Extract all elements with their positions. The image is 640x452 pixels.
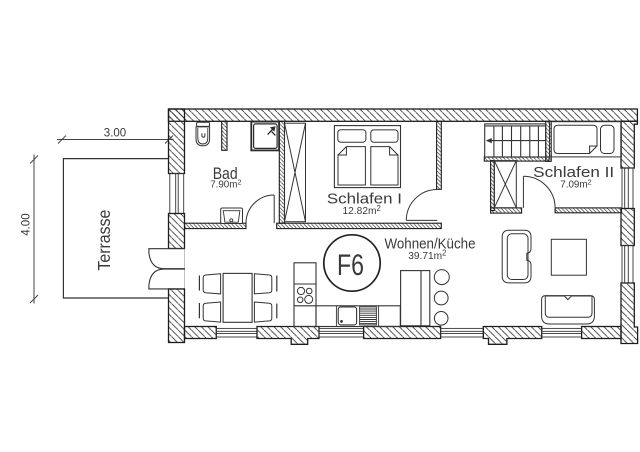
svg-text:12.82m2: 12.82m2 [343, 204, 381, 217]
svg-text:F6: F6 [337, 249, 364, 282]
svg-text:7.09m2: 7.09m2 [560, 177, 591, 190]
svg-text:3.00: 3.00 [104, 128, 126, 140]
svg-text:Wohnen/Küche: Wohnen/Küche [385, 235, 476, 252]
svg-text:Terrasse: Terrasse [94, 210, 114, 271]
svg-text:4.00: 4.00 [21, 213, 33, 235]
svg-text:39.71m2: 39.71m2 [408, 249, 446, 262]
svg-text:7.90m2: 7.90m2 [210, 178, 241, 191]
svg-text:Schlafen I: Schlafen I [327, 191, 402, 208]
